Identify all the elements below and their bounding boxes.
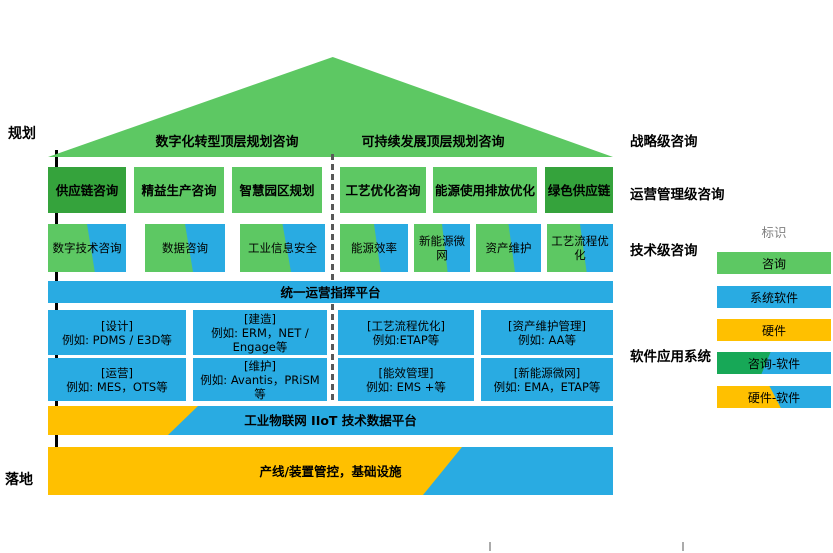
legend-item-consulting: 咨询	[717, 252, 831, 274]
label-technical-consulting: 技术级咨询	[630, 239, 698, 259]
axis-top-label: 规划	[8, 123, 36, 143]
label-operation-consulting: 运营管理级咨询	[630, 183, 725, 203]
software-box-build: [建造] 例如: ERM，NET / Engage等	[193, 310, 327, 355]
label-strategic-consulting: 战略级咨询	[630, 130, 698, 150]
roof-title-sustainable: 可持续发展顶层规划咨询	[361, 131, 504, 150]
software-box-energy-management: [能效管理] 例如: EMS +等	[338, 358, 474, 401]
bottom-tick-left	[489, 542, 491, 551]
center-dashed-divider	[331, 154, 334, 404]
infrastructure-band: 产线/装置管控，基础设施	[48, 447, 613, 495]
tech-box-process-flow-optimization: 工艺流程优化	[547, 224, 613, 272]
tech-box-industrial-security: 工业信息安全	[240, 224, 325, 272]
tech-box-data-consulting: 数据咨询	[145, 224, 225, 272]
software-box-microgrid: [新能源微网] 例如: EMA，ETAP等	[481, 358, 613, 401]
legend-item-system-software: 系统软件	[717, 286, 831, 308]
roof-title-digital: 数字化转型顶层规划咨询	[155, 131, 298, 150]
bottom-tick-right	[682, 542, 684, 551]
consulting-box-green-supply-chain: 绿色供应链	[545, 167, 613, 213]
consulting-box-smart-park: 智慧园区规划	[232, 167, 322, 213]
software-box-maintenance: [维护] 例如: Avantis，PRiSM等	[193, 358, 327, 401]
software-box-design: [设计] 例如: PDMS / E3D等	[48, 310, 186, 355]
consulting-box-energy-emission: 能源使用排放优化	[433, 167, 537, 213]
consulting-box-lean-production: 精益生产咨询	[134, 167, 224, 213]
tech-box-digital-tech: 数字技术咨询	[48, 224, 126, 272]
tech-box-energy-efficiency: 能源效率	[340, 224, 408, 272]
unified-platform-band: 统一运营指挥平台	[48, 281, 613, 303]
label-software-systems: 软件应用系统	[630, 345, 711, 365]
legend-item-hardware-software: 硬件-软件	[717, 386, 831, 408]
tech-box-new-energy-microgrid: 新能源微网	[414, 224, 470, 272]
software-box-asset-management: [资产维护管理] 例如: AA等	[481, 310, 613, 355]
tech-box-asset-maintenance: 资产维护	[476, 224, 541, 272]
legend-item-hardware: 硬件	[717, 319, 831, 341]
consulting-box-process-optimization: 工艺优化咨询	[340, 167, 426, 213]
software-box-operation: [运营] 例如: MES，OTS等	[48, 358, 186, 401]
consulting-box-supply-chain: 供应链咨询	[48, 167, 126, 213]
iiot-platform-band: 工业物联网 IIoT 技术数据平台	[48, 406, 613, 435]
diagram-canvas: 规划 落地 数字化转型顶层规划咨询 可持续发展顶层规划咨询 供应链咨询 精益生产…	[0, 0, 833, 553]
axis-bottom-label: 落地	[5, 469, 33, 489]
software-box-process-optimization: [工艺流程优化] 例如:ETAP等	[338, 310, 474, 355]
legend-item-consulting-software: 咨询-软件	[717, 352, 831, 374]
legend-title: 标识	[717, 222, 831, 241]
roof-triangle: 数字化转型顶层规划咨询 可持续发展顶层规划咨询	[48, 57, 613, 157]
